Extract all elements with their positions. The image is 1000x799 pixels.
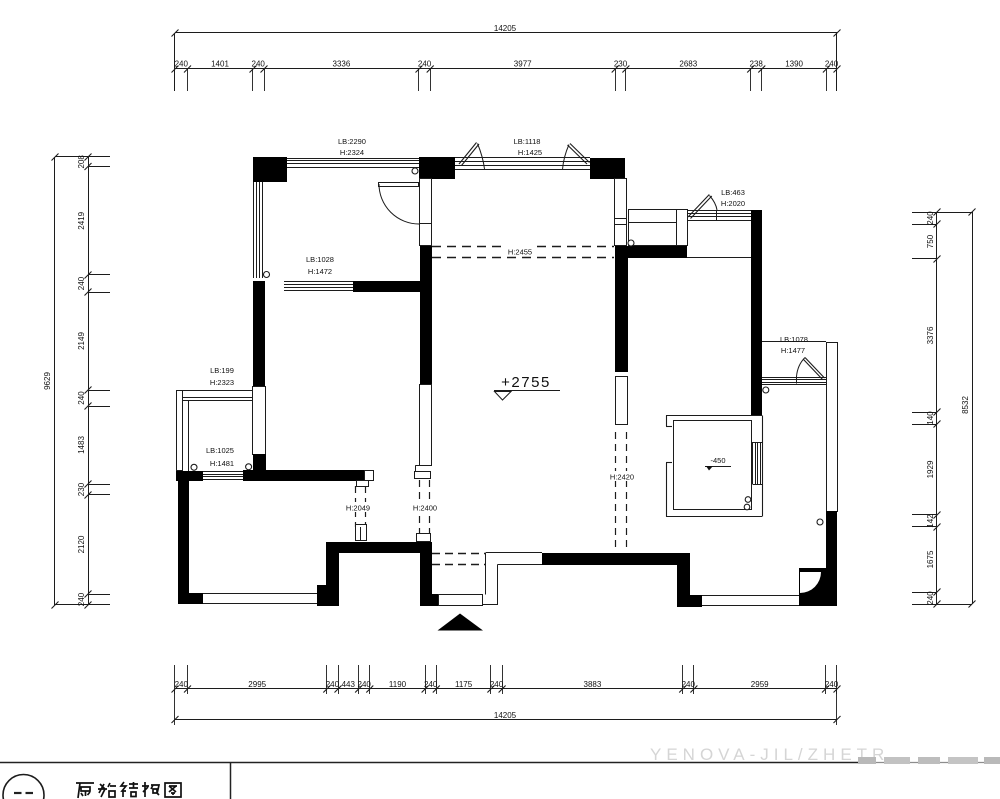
svg-text:H:2020: H:2020 [721,199,745,208]
svg-text:2120: 2120 [77,535,86,553]
svg-text:LB:1118: LB:1118 [514,137,541,146]
svg-text:LB:199: LB:199 [210,366,234,375]
svg-text:+2755: +2755 [501,374,551,391]
svg-text:H:2420: H:2420 [610,473,634,482]
svg-text:LB:1025: LB:1025 [206,446,234,455]
svg-text:140: 140 [926,411,935,425]
svg-text:240: 240 [424,680,438,689]
svg-text:240: 240 [490,680,504,689]
svg-text:-450: -450 [710,456,725,465]
svg-text:14205: 14205 [494,711,517,720]
svg-text:H:1472: H:1472 [308,267,332,276]
svg-text:LB:2290: LB:2290 [338,137,366,146]
svg-text:3336: 3336 [333,60,351,69]
svg-text:240: 240 [252,60,266,69]
svg-text:H:2323: H:2323 [210,378,234,387]
svg-text:1190: 1190 [389,680,407,689]
svg-text:240: 240 [825,60,839,69]
svg-text:240: 240 [77,592,86,606]
svg-text:YENOVA-JIL/ZHETR: YENOVA-JIL/ZHETR [650,745,889,764]
svg-text:240: 240 [926,591,935,605]
svg-text:750: 750 [926,234,935,248]
svg-text:H:2400: H:2400 [413,504,437,513]
svg-text:3376: 3376 [926,326,935,344]
svg-text:H:1481: H:1481 [210,459,234,468]
svg-text:H:2049: H:2049 [346,504,370,513]
svg-text:1390: 1390 [785,60,803,69]
svg-text:H:1425: H:1425 [518,148,542,157]
svg-text:1401: 1401 [211,60,229,69]
svg-text:H:2324: H:2324 [340,148,364,157]
svg-text:9629: 9629 [43,372,52,390]
svg-text:240: 240 [682,680,696,689]
svg-text:238: 238 [750,60,764,69]
svg-text:2683: 2683 [679,60,697,69]
svg-text:240: 240 [825,680,839,689]
svg-text:240: 240 [358,680,372,689]
svg-text:240: 240 [326,680,340,689]
svg-text:1929: 1929 [926,460,935,478]
svg-text:240: 240 [175,60,189,69]
svg-text:240: 240 [77,391,86,405]
svg-text:1175: 1175 [455,680,473,689]
svg-text:230: 230 [614,60,628,69]
svg-text:1483: 1483 [77,436,86,454]
svg-text:2419: 2419 [77,211,86,229]
svg-text:1675: 1675 [926,550,935,568]
svg-text:LB:1078: LB:1078 [780,335,808,344]
svg-text:443: 443 [342,680,356,689]
svg-text:3883: 3883 [584,680,602,689]
svg-text:208: 208 [77,155,86,169]
svg-text:142: 142 [926,514,935,528]
svg-text:2959: 2959 [751,680,769,689]
svg-text:H:1477: H:1477 [781,346,805,355]
svg-text:240: 240 [175,680,189,689]
svg-text:240: 240 [418,60,432,69]
svg-text:LB:1028: LB:1028 [306,255,334,264]
svg-text:2995: 2995 [248,680,266,689]
svg-text:3977: 3977 [514,60,532,69]
svg-text:2149: 2149 [77,332,86,350]
svg-text:14205: 14205 [494,24,517,33]
svg-text:LB:463: LB:463 [721,188,745,197]
svg-text:H:2455: H:2455 [508,248,532,257]
svg-text:230: 230 [77,482,86,496]
svg-text:240: 240 [77,276,86,290]
svg-text:8532: 8532 [961,396,970,414]
svg-text:240: 240 [926,211,935,225]
